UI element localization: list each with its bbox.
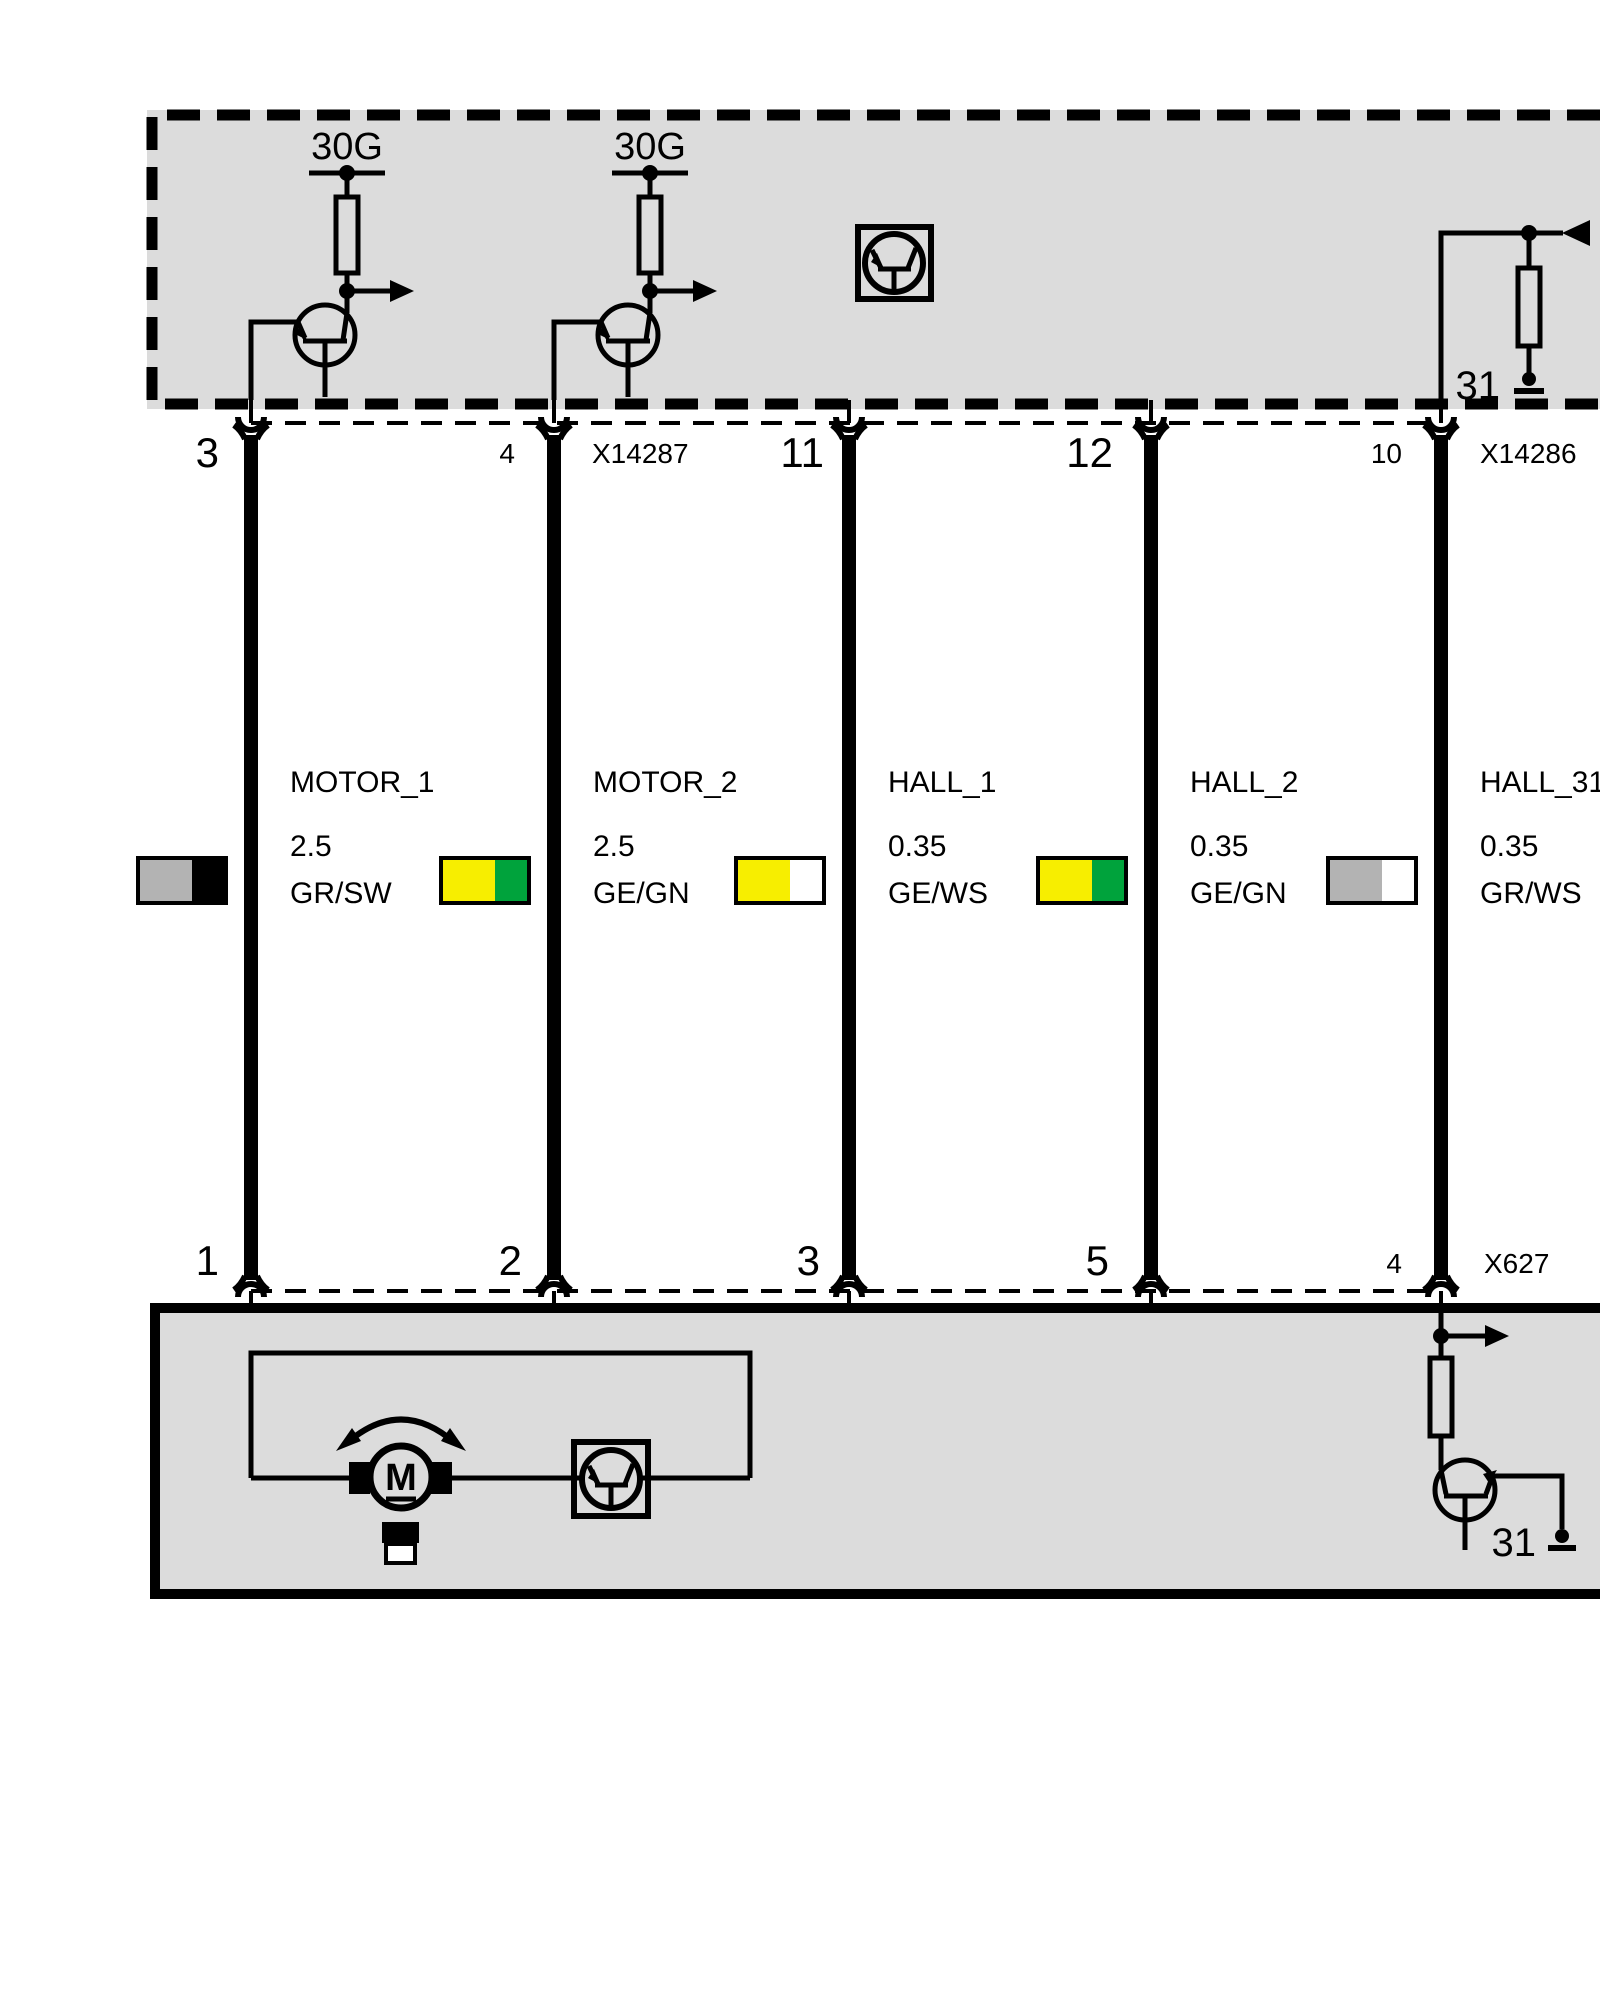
pin-label: 3 (196, 429, 219, 476)
wire-color-code: GE/GN (593, 877, 690, 910)
wire-label-motor-1: MOTOR_1 2.5 GR/SW (138, 766, 434, 910)
bottom-module-fill (150, 1303, 1600, 1598)
swatch-right (192, 860, 226, 901)
fuse-label: 30G (614, 126, 686, 168)
swatch-right (495, 860, 529, 901)
wiring-diagram-page: 30G 30G (0, 0, 1600, 2000)
pin-label: 12 (1066, 429, 1113, 476)
wire-hall-1 (832, 400, 866, 1313)
fuse-label: 30G (311, 126, 383, 168)
color-swatch (138, 858, 226, 903)
wire-color-code: GR/SW (290, 877, 392, 910)
color-swatch (1328, 858, 1416, 903)
pin-label: 1 (196, 1237, 219, 1284)
wiring-diagram: 30G 30G (0, 0, 1600, 2000)
motor-label: M (385, 1457, 417, 1499)
wire-name: HALL_1 (888, 766, 996, 799)
bottom-pin-labels: 1 2 3 5 4 X627 (196, 1237, 1550, 1284)
color-swatch (441, 858, 529, 903)
pin-label: 5 (1086, 1237, 1109, 1284)
wire-gauge: 0.35 (1190, 830, 1248, 863)
pin-label: 4 (1386, 1248, 1402, 1279)
pin-label: 3 (797, 1237, 820, 1284)
wire-color-code: GE/WS (888, 877, 988, 910)
color-swatch (736, 858, 824, 903)
swatch-left (140, 860, 192, 901)
swatch-left (738, 860, 790, 901)
position-indicator-icon (386, 1544, 415, 1563)
wire-name: HALL_31 (1480, 766, 1600, 799)
swatch-left (443, 860, 495, 901)
wire-name: HALL_2 (1190, 766, 1298, 799)
connector-label: X14287 (592, 438, 689, 469)
swatch-left (1040, 860, 1092, 901)
ground-terminal-label: 31 (1492, 1521, 1537, 1565)
wire-label-motor-2: MOTOR_2 2.5 GE/GN (441, 766, 737, 910)
wire-color-code: GR/WS (1480, 877, 1582, 910)
wire-label-hall-1: HALL_1 0.35 GE/WS (736, 766, 996, 910)
swatch-left (1330, 860, 1382, 901)
wire-color-code: GE/GN (1190, 877, 1287, 910)
wire-gauge: 2.5 (290, 830, 332, 863)
wire-hall-2 (1134, 400, 1168, 1313)
swatch-right (1092, 860, 1126, 901)
wire-name: MOTOR_1 (290, 766, 434, 799)
wire-motor-1 (234, 400, 268, 1313)
wire-hall-31 (1424, 400, 1458, 1313)
wire-name: MOTOR_2 (593, 766, 737, 799)
ground-terminal-label: 31 (1456, 364, 1501, 408)
wire-gauge: 2.5 (593, 830, 635, 863)
pin-label: 4 (499, 438, 515, 469)
position-indicator-icon (382, 1522, 419, 1543)
connector-label: X627 (1484, 1248, 1549, 1279)
ground-icon (1555, 1529, 1569, 1543)
color-swatch (1038, 858, 1126, 903)
pin-label: 11 (780, 429, 824, 476)
connector-label: X14286 (1480, 438, 1577, 469)
bottom-module-box (150, 1303, 1600, 1598)
pin-label: 10 (1371, 438, 1402, 469)
wire-label-hall-31: HALL_31 0.35 GR/WS (1328, 766, 1600, 910)
top-pin-labels: 3 4 X14287 11 12 10 X14286 (196, 429, 1577, 476)
wire-gauge: 0.35 (1480, 830, 1538, 863)
swatch-right (1382, 860, 1416, 901)
wire-gauge: 0.35 (888, 830, 946, 863)
swatch-right (790, 860, 824, 901)
ground-icon (1522, 372, 1536, 386)
wire-label-hall-2: HALL_2 0.35 GE/GN (1038, 766, 1298, 910)
pin-label: 2 (499, 1237, 522, 1284)
wire-motor-2 (537, 400, 571, 1313)
